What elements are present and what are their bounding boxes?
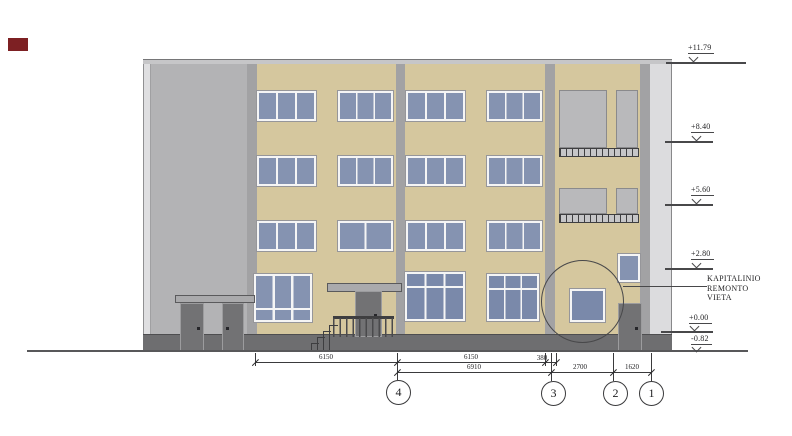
- window-glass: [256, 276, 310, 308]
- note-leader-line: [623, 286, 707, 287]
- level-tick-icon: [689, 53, 699, 63]
- canopy-left: [175, 295, 255, 303]
- window: [486, 155, 543, 187]
- ground-line: [27, 350, 748, 352]
- level-label: +2.80: [691, 249, 714, 260]
- balcony-railing: [559, 214, 639, 223]
- door-handle: [635, 327, 638, 330]
- window: [337, 220, 394, 252]
- level-line: [666, 62, 746, 64]
- window: [405, 90, 466, 122]
- window: [256, 90, 317, 122]
- axis-bubble-4: 4: [386, 380, 411, 405]
- door-handle: [197, 327, 200, 330]
- level-tick-icon: [692, 259, 702, 269]
- balcony-railing: [559, 148, 639, 157]
- edge-strip-left: [143, 64, 151, 334]
- note-line: REMONTO: [707, 284, 777, 294]
- elevation-drawing: +11.79 +8.40 +5.60 +2.80 +0.00 -0.82 KAP…: [0, 0, 792, 436]
- ground-window: [253, 273, 313, 323]
- level-label: +5.60: [691, 185, 714, 196]
- red-mark: [8, 38, 28, 51]
- note-line: KAPITALINIO: [707, 274, 777, 284]
- window: [337, 155, 394, 187]
- window-glass: [407, 288, 463, 319]
- pilaster-d: [640, 64, 650, 334]
- window: [256, 220, 317, 252]
- window: [486, 220, 543, 252]
- door-left-2: [222, 303, 244, 351]
- dim-label: 2700: [560, 363, 600, 371]
- repair-circle: [541, 260, 624, 343]
- stairwell-block: [151, 64, 247, 334]
- window-glass: [407, 274, 463, 286]
- window-glass: [256, 310, 310, 320]
- edge-strip-right: [650, 64, 672, 334]
- dim-label: 6150: [451, 353, 491, 361]
- dim-label: 1620: [612, 363, 652, 371]
- door-left-1: [180, 303, 204, 351]
- balcony-panel: [616, 188, 638, 214]
- level-tick-icon: [692, 132, 702, 142]
- ground-window: [486, 273, 540, 322]
- window: [256, 155, 317, 187]
- door-handle: [226, 327, 229, 330]
- level-tick-icon: [692, 195, 702, 205]
- window-glass: [489, 276, 537, 288]
- dim-label: 6910: [454, 363, 494, 371]
- level-line: [665, 141, 713, 143]
- extension-line: [397, 353, 398, 380]
- ground-window: [404, 271, 466, 322]
- level-line: [665, 204, 713, 206]
- level-line: [665, 268, 713, 270]
- dim-label: 6150: [306, 353, 346, 361]
- balcony-panel: [559, 90, 607, 148]
- dim-label: 380: [528, 354, 556, 362]
- axis-bubble-3: 3: [541, 381, 566, 406]
- axis-bubble-1: 1: [639, 381, 664, 406]
- small-window: [617, 253, 641, 283]
- balcony-panel: [616, 90, 638, 148]
- repair-note: KAPITALINIO REMONTO VIETA: [707, 274, 777, 303]
- window: [337, 90, 394, 122]
- note-line: VIETA: [707, 293, 777, 303]
- level-label: +8.40: [691, 122, 714, 133]
- window-glass: [489, 290, 537, 319]
- balcony-panel: [559, 188, 607, 214]
- level-line: [661, 331, 713, 333]
- porch-balusters: [333, 318, 394, 337]
- window: [486, 90, 543, 122]
- axis-bubble-2: 2: [603, 381, 628, 406]
- window: [405, 220, 466, 252]
- window: [405, 155, 466, 187]
- dim-line-row1: [255, 362, 557, 363]
